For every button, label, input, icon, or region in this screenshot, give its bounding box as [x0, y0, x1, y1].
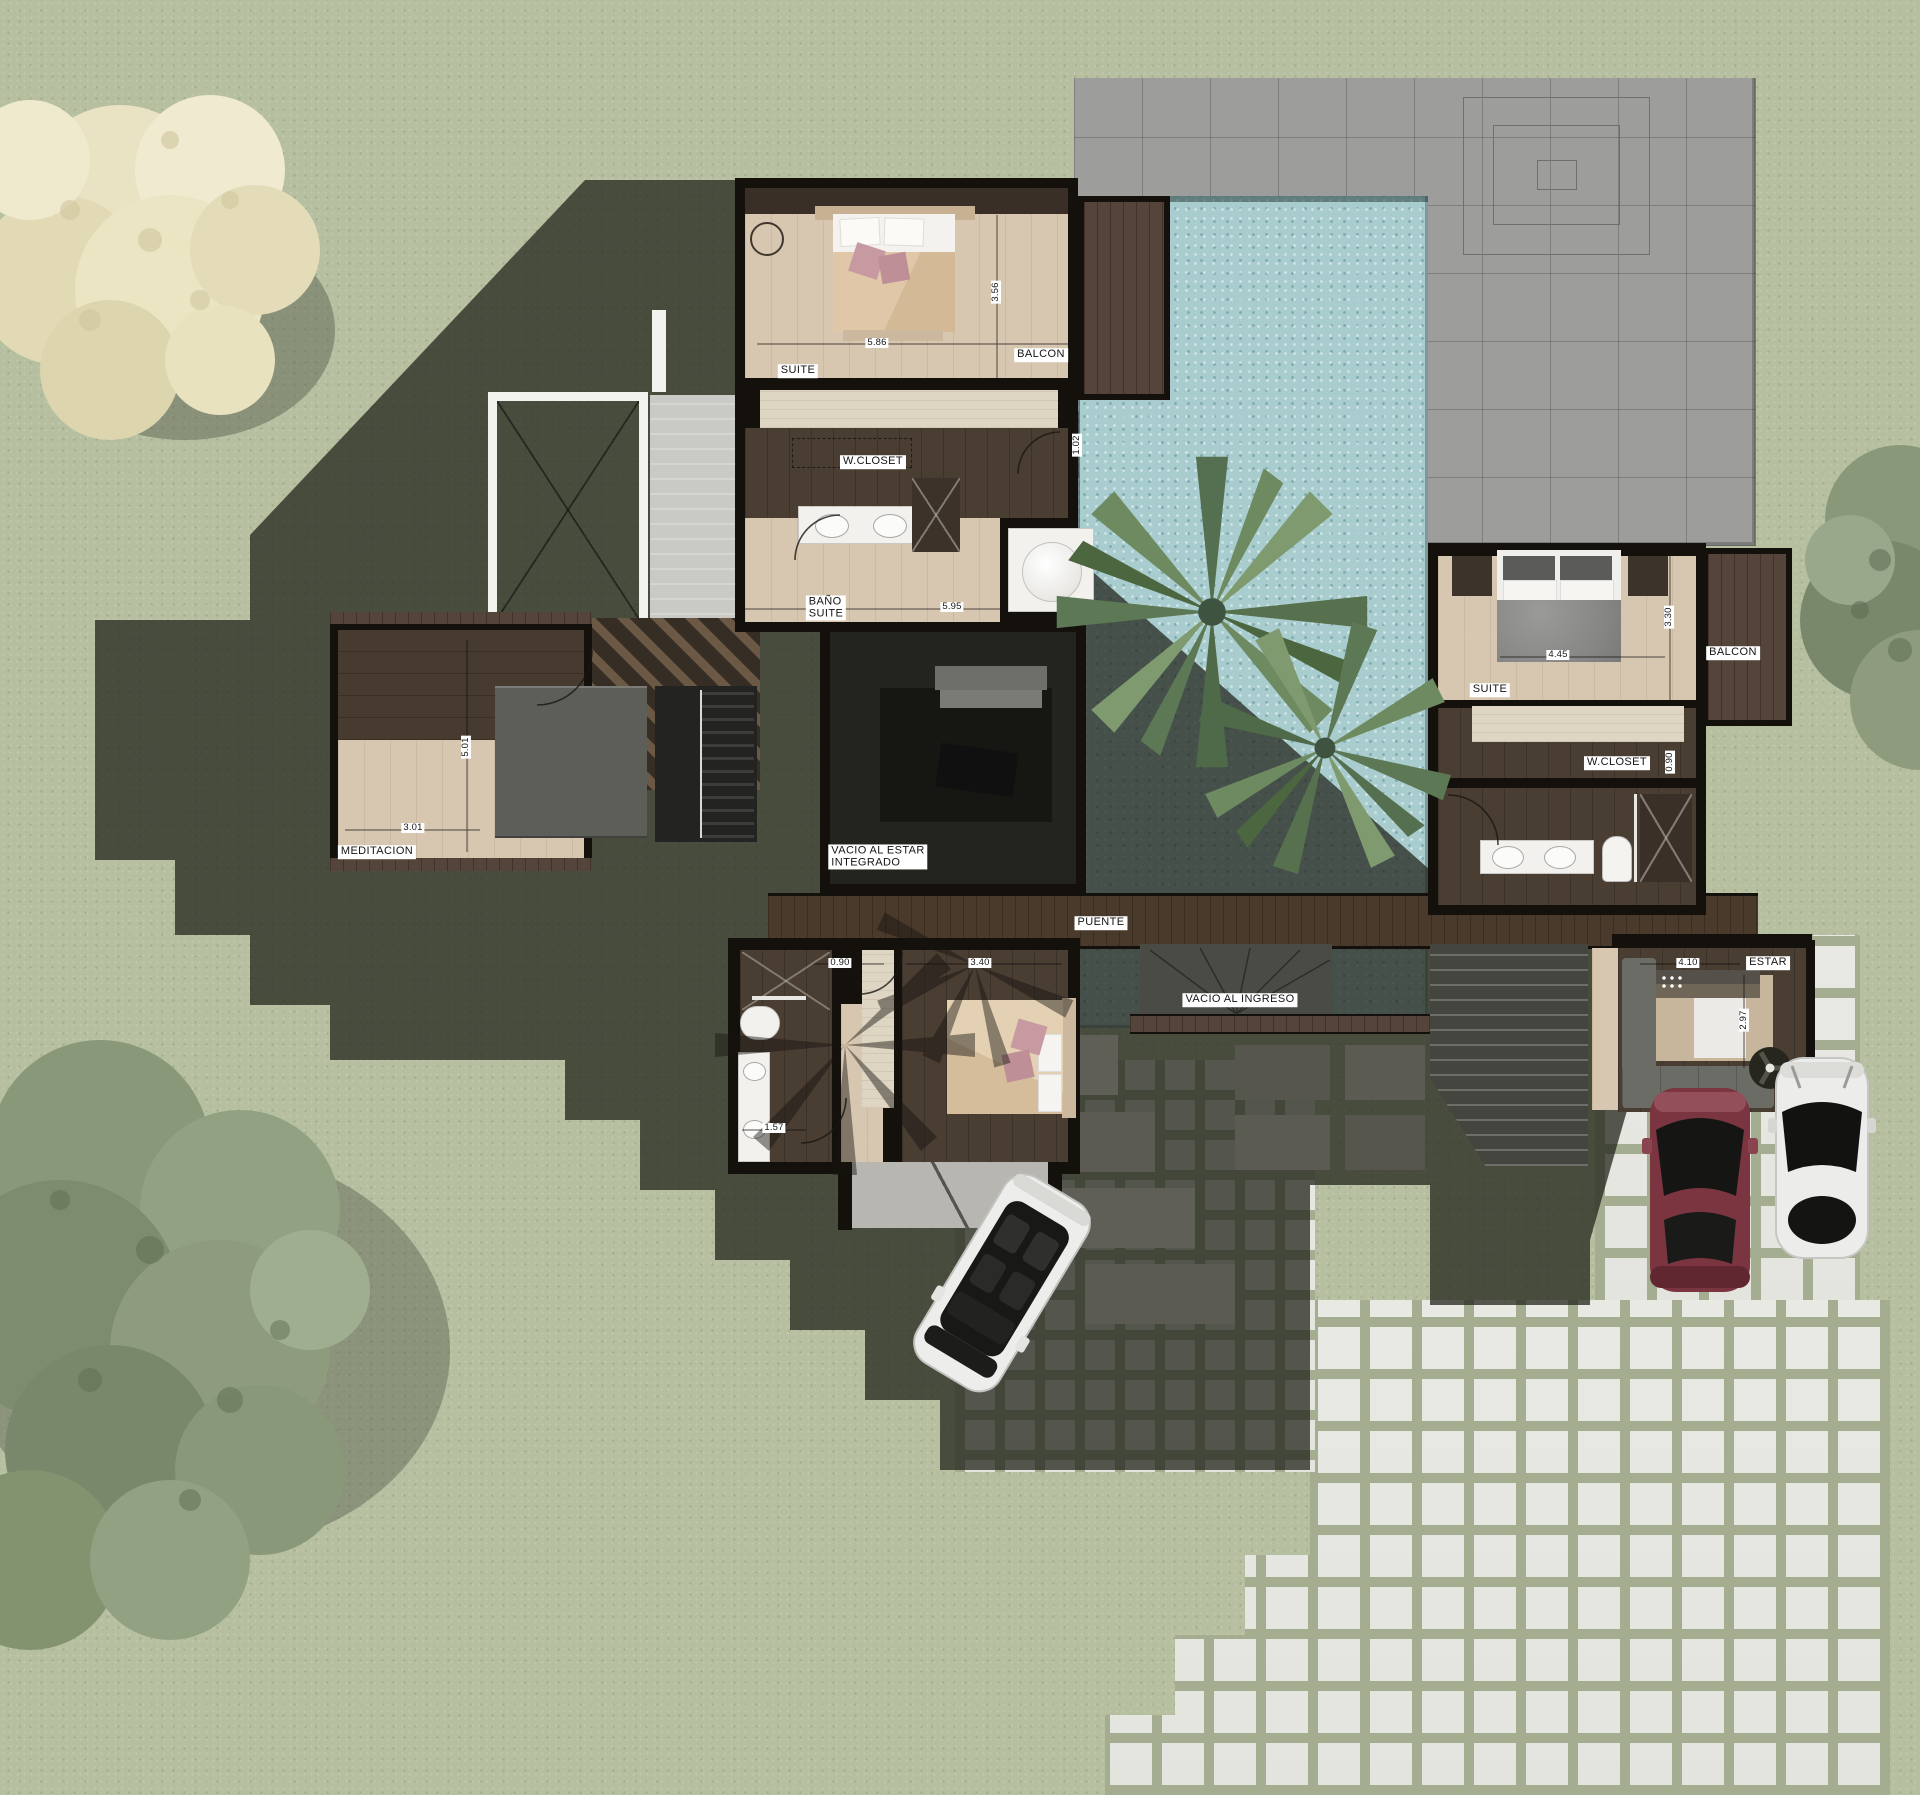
- suite1-label: SUITE: [778, 364, 818, 378]
- meditacion-depth: 5.01: [461, 735, 471, 758]
- vacio-estar-label: VACIO AL ESTAR INTEGRADO: [828, 844, 927, 869]
- meditacion-label: MEDITACION: [338, 845, 416, 859]
- wcloset1-depth: 1.02: [1072, 433, 1082, 456]
- estar-label: ESTAR: [1746, 956, 1790, 970]
- bano-suite-label: BAÑO SUITE: [806, 595, 846, 620]
- wcloset2-label: W.CLOSET: [1584, 756, 1650, 770]
- labels-layer: SUITE5.863.56BALCONW.CLOSET1.02BAÑO SUIT…: [0, 0, 1920, 1795]
- suite2-label: SUITE: [1470, 683, 1510, 697]
- estar-width: 4.10: [1676, 958, 1699, 968]
- bano-suite-width: 5.95: [940, 602, 963, 612]
- meditacion-width: 3.01: [401, 823, 424, 833]
- wcloset1-label: W.CLOSET: [840, 455, 906, 469]
- puente-label: PUENTE: [1074, 916, 1127, 930]
- site-plan: SUITE5.863.56BALCONW.CLOSET1.02BAÑO SUIT…: [0, 0, 1920, 1795]
- closet3-width: 0.90: [828, 958, 851, 968]
- suite1-depth: 3.56: [991, 280, 1001, 303]
- bedroom3-width: 3.40: [968, 958, 991, 968]
- bano3-width: 1.57: [762, 1123, 785, 1133]
- estar-depth: 2.97: [1739, 1008, 1749, 1031]
- suite2-depth: 3.30: [1664, 605, 1674, 628]
- vacio-ingreso-label: VACIO AL INGRESO: [1182, 993, 1297, 1007]
- wcloset2-depth: 0.90: [1665, 750, 1675, 773]
- balcon1-label: BALCON: [1014, 348, 1068, 362]
- suite1-width: 5.86: [865, 338, 888, 348]
- suite2-width: 4.45: [1546, 650, 1569, 660]
- balcon2-label: BALCON: [1706, 646, 1760, 660]
